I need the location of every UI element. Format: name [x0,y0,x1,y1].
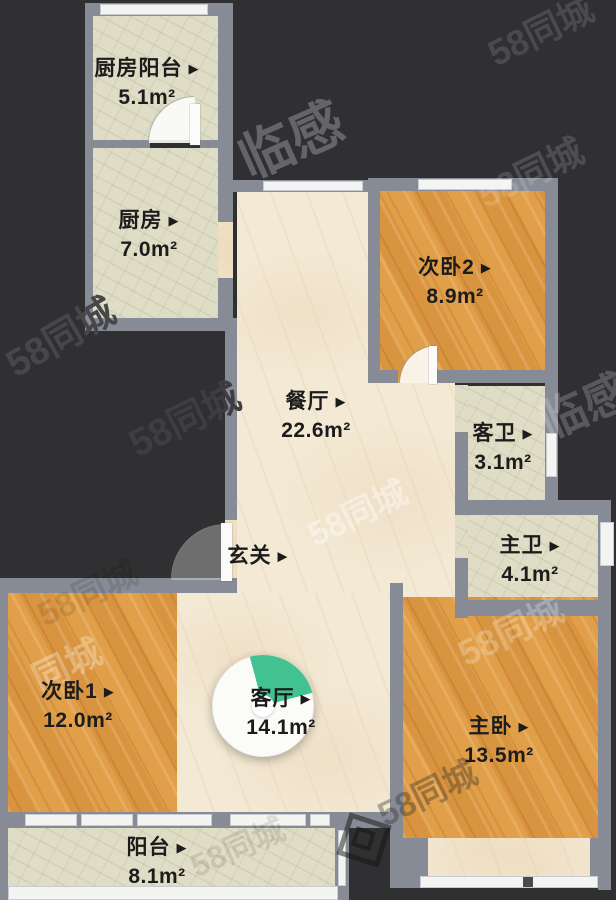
room-label-master-bath[interactable]: 主卫▶ 4.1m² [500,532,561,588]
navigate-arrow-icon: ▶ [550,532,561,559]
wall [545,178,558,383]
room-label-master-bedroom[interactable]: 主卧▶ 13.5m² [464,713,534,769]
bay-window-mullion [523,877,533,887]
navigate-arrow-icon: ▶ [169,207,180,234]
wall [0,578,8,900]
watermark-cube-inner [351,826,376,851]
room-label-bedroom1[interactable]: 次卧1▶ 12.0m² [41,678,115,734]
window [25,814,77,826]
watermark: 58同城 [0,103,6,199]
room-label-guest-bath[interactable]: 客卫▶ 3.1m² [473,420,534,476]
navigate-arrow-icon: ▶ [189,55,200,82]
wall [455,500,611,515]
wall [218,3,233,222]
navigate-arrow-icon: ▶ [278,543,289,570]
room-label-kitchen[interactable]: 厨房▶ 7.0m² [119,207,180,263]
navigate-arrow-icon: ▶ [177,834,188,861]
room-label-entry[interactable]: 玄关▶ [228,543,289,572]
navigate-arrow-icon: ▶ [335,388,346,415]
navigate-arrow-icon: ▶ [523,420,534,447]
room-label-balcony[interactable]: 阳台▶ 8.1m² [127,834,188,890]
window [137,814,212,826]
navigate-arrow-icon: ▶ [300,685,311,712]
door-gap-guest-bath [455,385,468,432]
wall [368,370,398,383]
door-arc-entry [172,525,227,580]
watermark: 58同城 [478,0,602,77]
room-label-living[interactable]: 客厅▶ 14.1m² [246,685,316,741]
window [100,4,208,15]
navigate-arrow-icon: ▶ [104,678,115,705]
navigate-arrow-icon: ▶ [518,713,529,740]
wall [85,3,93,330]
door-leaf-bedroom2 [429,346,437,384]
watermark: 临感 [224,78,355,194]
wall [85,140,150,148]
floorplan-canvas: 58同城 58同城 58同城 临感 58同城 58同城 临感 58同城 同城 5… [0,0,616,900]
door-gap-kitchen [218,222,233,278]
navigate-arrow-icon: ▶ [481,254,492,281]
wall [437,370,558,383]
watermark: 58同城 [0,281,124,388]
bay-window-floor [428,838,590,876]
wall [200,140,233,148]
wall [368,178,380,383]
window [600,522,614,566]
room-label-bedroom2[interactable]: 次卧2▶ 8.9m² [418,254,492,310]
bay-window-sill [420,876,598,888]
room-label-kitchen-balcony[interactable]: 厨房阳台▶ 5.1m² [95,55,200,111]
room-label-dining[interactable]: 餐厅▶ 22.6m² [281,388,351,444]
window [310,814,330,826]
door-gap-master-bath [455,515,468,558]
window [81,814,133,826]
